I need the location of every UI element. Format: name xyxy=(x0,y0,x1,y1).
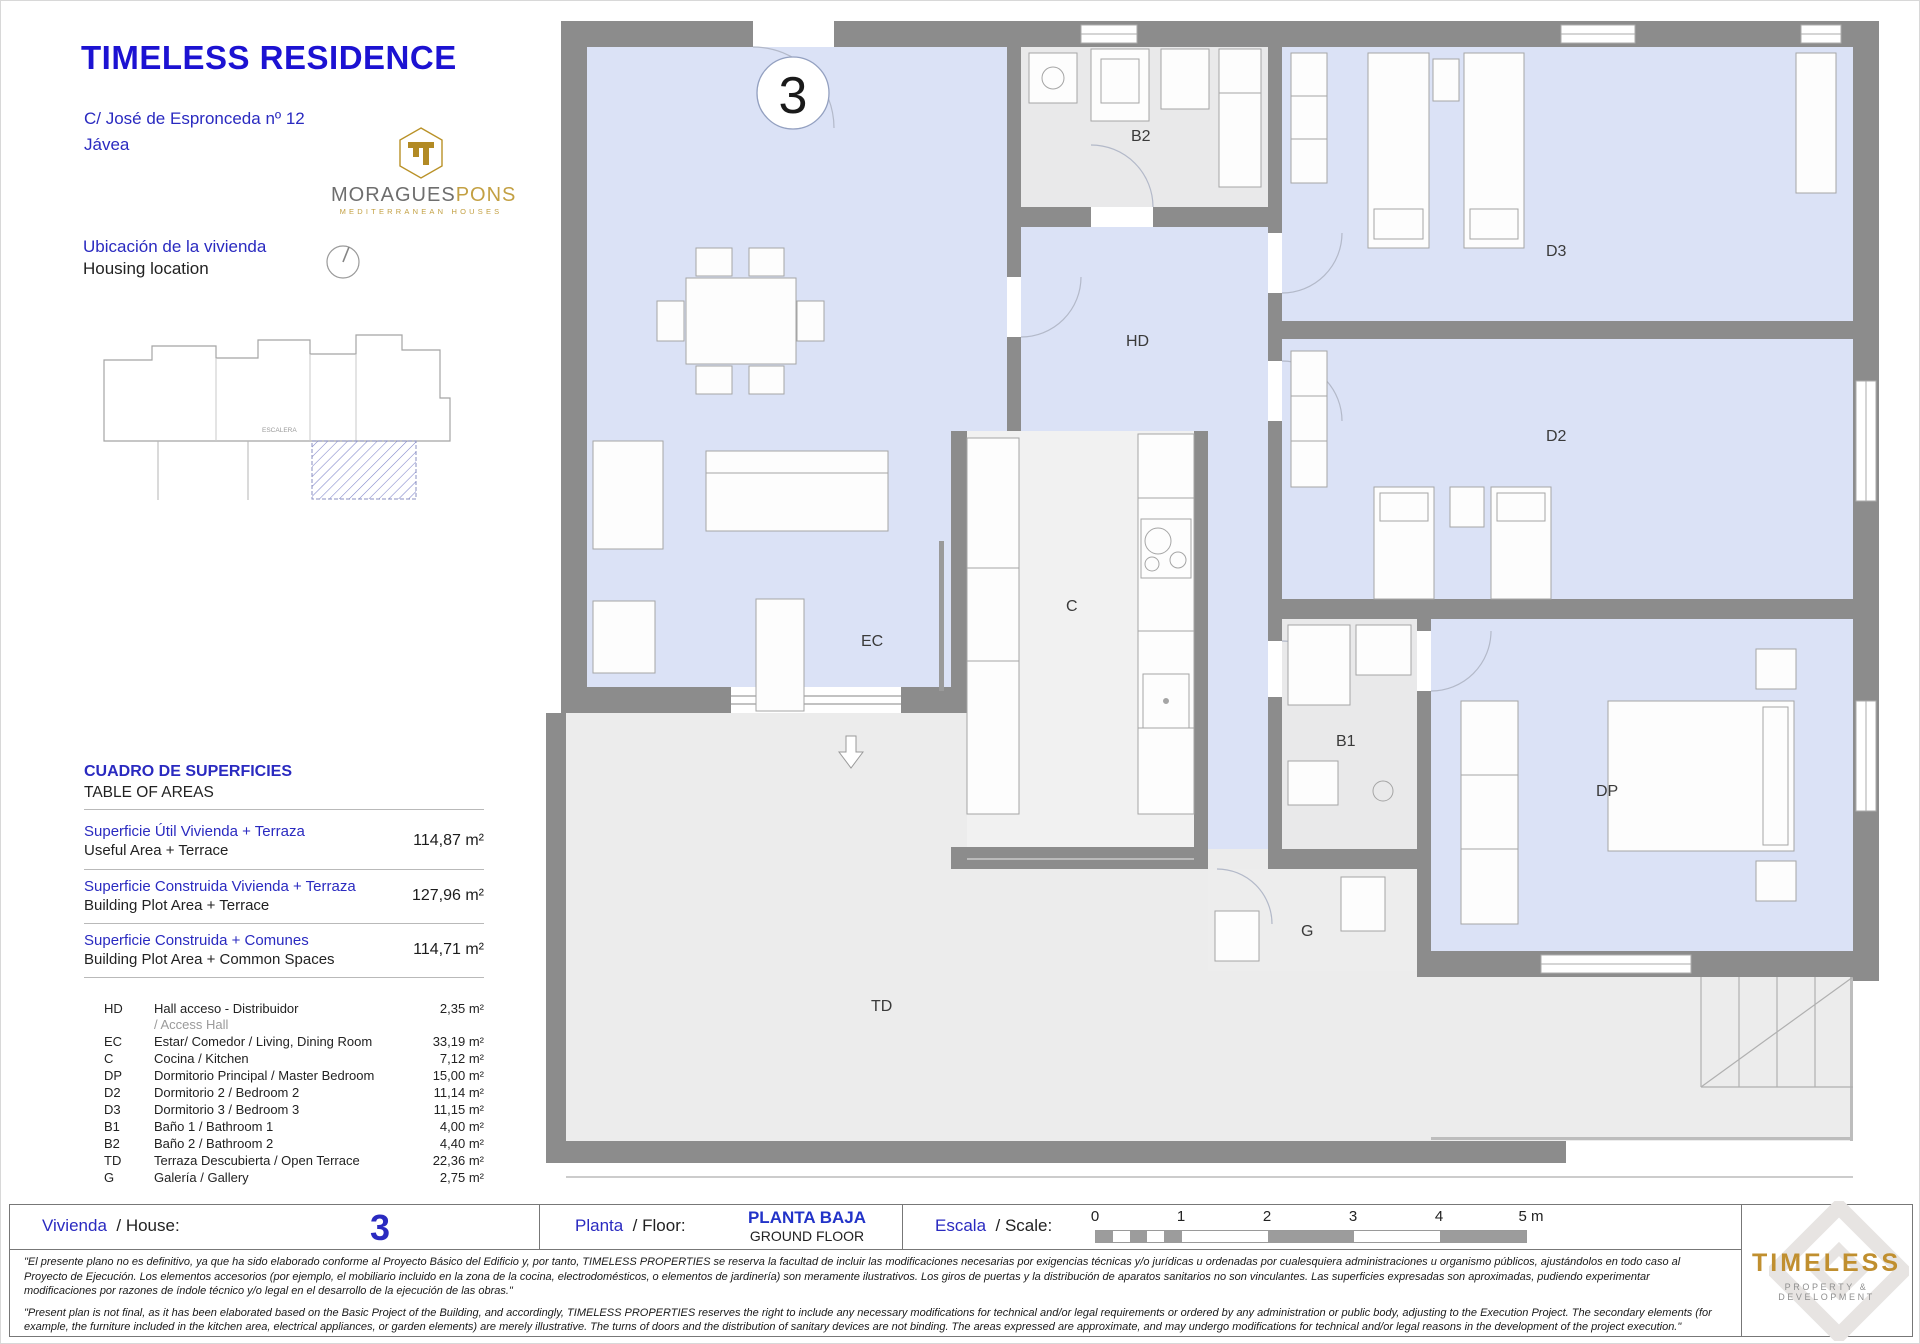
room-label-ec: EC xyxy=(861,633,883,650)
scale-tick: 5 m xyxy=(1518,1208,1543,1225)
svg-text:3: 3 xyxy=(779,67,808,125)
scale-label: Escala / Scale: xyxy=(935,1216,1052,1236)
scale-tick: 1 xyxy=(1177,1208,1185,1225)
timeless-logo: TIMELESS PROPERTY & DEVELOPMENT xyxy=(1741,1205,1912,1336)
disclaimer: "El presente plano no es definitivo, ya … xyxy=(24,1255,1724,1335)
corridor-floor xyxy=(1208,431,1268,849)
scale-tick: 0 xyxy=(1091,1208,1099,1225)
scale-tick: 2 xyxy=(1263,1208,1271,1225)
title-block: Vivienda / House: 3 Planta / Floor: PLAN… xyxy=(9,1204,1913,1337)
scale-tick: 4 xyxy=(1435,1208,1443,1225)
room-label-g: G xyxy=(1301,923,1313,940)
unit-number-badge: 3 xyxy=(757,57,829,129)
room-d2-floor xyxy=(1282,339,1853,599)
room-label-c: C xyxy=(1066,598,1078,615)
room-label-td: TD xyxy=(871,998,892,1015)
timeless-name: TIMELESS xyxy=(1741,1249,1912,1278)
room-label-dp: DP xyxy=(1596,783,1618,800)
disclaimer-es: "El presente plano no es definitivo, ya … xyxy=(24,1255,1724,1299)
scale-tick: 3 xyxy=(1349,1208,1357,1225)
house-number: 3 xyxy=(370,1207,390,1249)
room-label-d2: D2 xyxy=(1546,428,1567,445)
room-label-hd: HD xyxy=(1126,333,1149,350)
room-label-b1: B1 xyxy=(1336,733,1356,750)
house-label: Vivienda / House: xyxy=(42,1216,180,1236)
room-label-d3: D3 xyxy=(1546,243,1567,260)
timeless-tagline: PROPERTY & DEVELOPMENT xyxy=(1741,1282,1912,1302)
scale-bar: 0 1 2 3 4 5 m xyxy=(1095,1208,1555,1248)
room-hd-floor xyxy=(1021,227,1268,431)
floor-label: Planta / Floor: xyxy=(575,1216,686,1236)
room-label-b2: B2 xyxy=(1131,128,1151,145)
disclaimer-en: "Present plan is not final, as it has be… xyxy=(24,1306,1724,1335)
floor-value: PLANTA BAJA GROUND FLOOR xyxy=(722,1208,892,1244)
floor-plan: 3 B2 D3 HD D2 EC C B1 DP G TD xyxy=(1,1,1920,1201)
floor-plan-sheet: TIMELESS RESIDENCE C/ José de Espronceda… xyxy=(0,0,1920,1344)
